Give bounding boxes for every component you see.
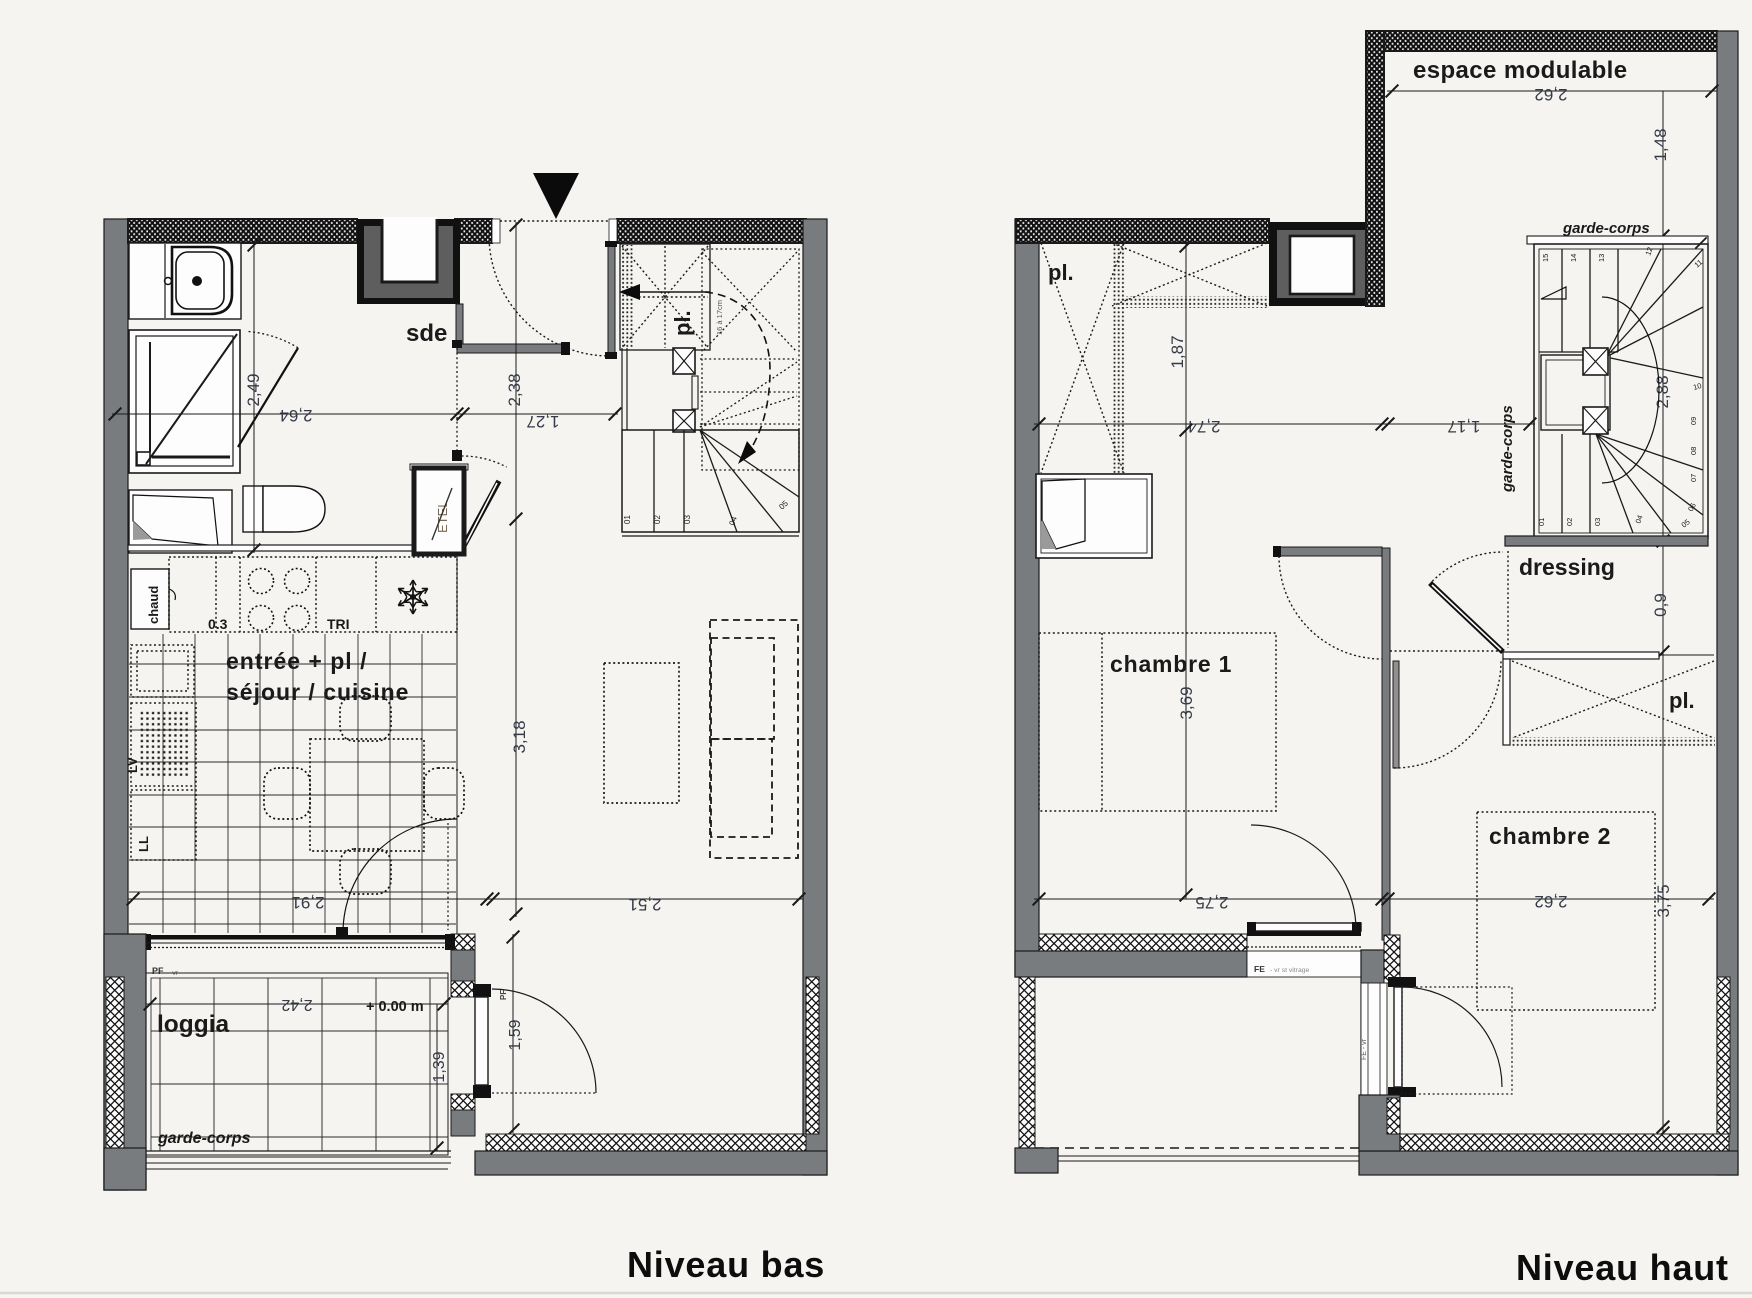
svg-text:2,88: 2,88 [1653,375,1672,408]
svg-text:loggia: loggia [157,1011,230,1038]
svg-text:+ 0.00 m: + 0.00 m [366,999,424,1015]
svg-text:1,87: 1,87 [1168,335,1187,368]
svg-text:2,49: 2,49 [244,373,263,406]
svg-text:2,62: 2,62 [1534,85,1567,104]
svg-text:3,69: 3,69 [1177,686,1196,719]
svg-text:PF: PF [152,966,164,976]
svg-text:1,39: 1,39 [431,1051,448,1082]
svg-text:garde-corps: garde-corps [157,1130,251,1147]
svg-text:2,51: 2,51 [628,895,661,914]
svg-text:2,75: 2,75 [1195,893,1228,912]
svg-text:2,64: 2,64 [279,406,312,425]
svg-text:3,75: 3,75 [1654,884,1673,917]
svg-text:chambre 1: chambre 1 [1110,651,1232,677]
svg-text:15: 15 [1541,254,1550,262]
svg-text:dressing: dressing [1519,554,1615,580]
svg-text:2,38: 2,38 [505,373,524,406]
svg-text:2,74: 2,74 [1187,417,1220,436]
svg-text:pl.: pl. [1669,688,1695,713]
svg-text:LL: LL [136,836,151,852]
svg-text:2,42: 2,42 [281,996,312,1013]
svg-text:03: 03 [1593,518,1602,526]
svg-text:sde: sde [406,320,447,347]
svg-text:PF: PF [499,990,508,1000]
svg-text:pl.: pl. [670,310,695,336]
svg-text:02: 02 [653,515,662,524]
svg-text:2,91: 2,91 [291,893,324,912]
svg-text:13: 13 [1597,254,1606,262]
svg-text:01: 01 [623,515,632,524]
svg-text:pl.: pl. [1048,260,1074,285]
svg-text:LV: LV [125,757,140,773]
svg-text:0,9: 0,9 [1651,593,1670,617]
svg-text:01: 01 [1537,518,1546,526]
svg-text:TRI: TRI [327,616,350,632]
svg-text:entrée + pl /: entrée + pl / [226,648,367,674]
svg-text:08: 08 [1689,447,1698,455]
svg-text:chaud: chaud [146,586,161,624]
svg-text:chambre 2: chambre 2 [1489,823,1611,849]
svg-text:1,27: 1,27 [526,412,559,431]
svg-text:Niveau haut: Niveau haut [1516,1247,1729,1288]
svg-text:garde-corps: garde-corps [1499,405,1516,493]
svg-text:1,59: 1,59 [507,1019,524,1050]
svg-text:Niveau bas: Niveau bas [627,1244,825,1285]
svg-text:02: 02 [1565,518,1574,526]
svg-text:espace modulable: espace modulable [1413,57,1627,84]
svg-text:07: 07 [1689,474,1698,482]
svg-text:3,18: 3,18 [510,720,529,753]
svg-text:2,62: 2,62 [1534,892,1567,911]
svg-text:FE: FE [1254,964,1265,974]
svg-text:1,48: 1,48 [1651,128,1670,161]
svg-text:- vr st vitrage: - vr st vitrage [1270,967,1309,974]
svg-text:garde-corps: garde-corps [1562,220,1650,237]
svg-text:1,17: 1,17 [1447,417,1480,436]
svg-text:09: 09 [1689,417,1698,425]
svg-text:FE - vr: FE - vr [1361,1038,1368,1060]
svg-text:0.3: 0.3 [208,616,228,632]
svg-text:03: 03 [683,515,692,524]
svg-text:séjour / cuisine: séjour / cuisine [226,679,409,705]
svg-text:14: 14 [1569,254,1578,262]
